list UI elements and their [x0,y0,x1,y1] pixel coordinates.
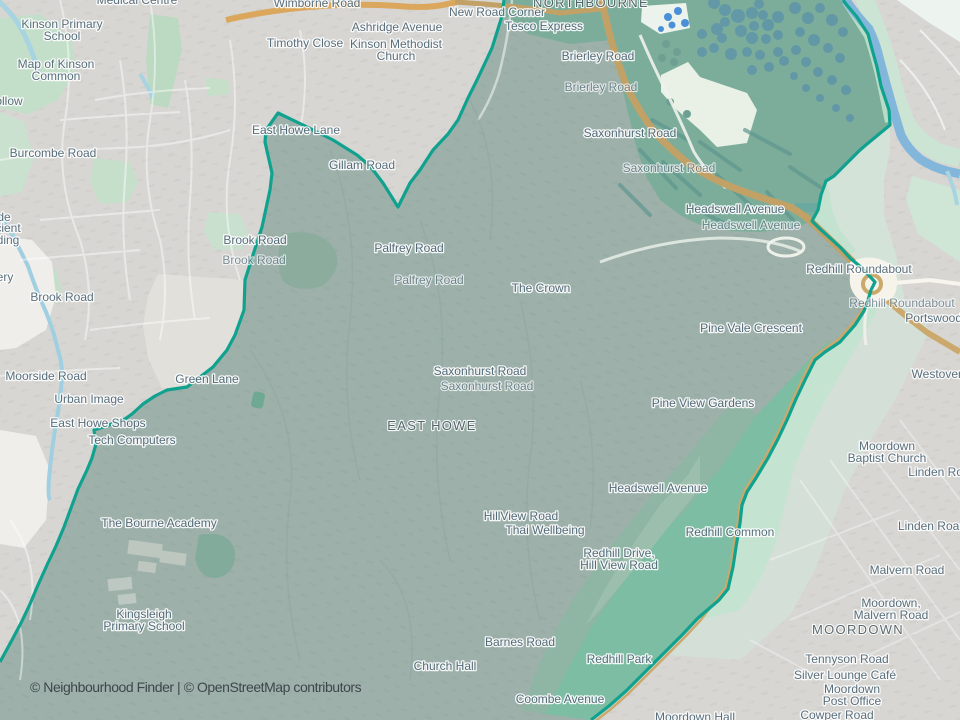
svg-text:Brook Road: Brook Road [30,290,93,304]
svg-text:Baptist Church: Baptist Church [848,451,927,465]
svg-text:Portswood: Portswood [905,311,960,325]
svg-text:Brierley Road: Brierley Road [562,49,635,63]
svg-text:Redhill Park: Redhill Park [587,652,653,666]
svg-text:Saxonhurst Road: Saxonhurst Road [584,126,677,140]
svg-text:Hill View Road: Hill View Road [580,558,658,572]
svg-text:Westover: Westover [912,367,960,381]
svg-text:Malvern Road: Malvern Road [854,608,929,622]
svg-text:Palfrey Road: Palfrey Road [374,241,443,255]
svg-text:Linden Road: Linden Road [898,519,960,533]
svg-text:School: School [44,29,81,43]
svg-text:Saxonhurst Road: Saxonhurst Road [441,379,534,393]
svg-text:ollow: ollow [0,94,23,108]
svg-text:New Road Corner: New Road Corner [449,5,545,19]
svg-text:East Howe Lane: East Howe Lane [252,123,340,137]
svg-text:Post Office: Post Office [823,694,882,708]
svg-text:Barnes Road: Barnes Road [485,635,555,649]
svg-text:Linden Ro: Linden Ro [908,465,960,479]
svg-text:Green Lane: Green Lane [175,372,239,386]
svg-text:Saxonhurst Road: Saxonhurst Road [623,161,716,175]
svg-text:Wimborne Road: Wimborne Road [274,0,361,10]
svg-text:ding: ding [0,233,19,247]
svg-text:Headswell Avenue: Headswell Avenue [702,218,801,232]
svg-text:Silver Lounge Café: Silver Lounge Café [794,668,896,682]
svg-text:© Neighbourhood Finder | © Ope: © Neighbourhood Finder | © OpenStreetMap… [30,679,362,695]
svg-text:Tesco Express: Tesco Express [505,19,583,33]
svg-text:Redhill Roundabout: Redhill Roundabout [849,296,955,310]
svg-text:East Howe Shops: East Howe Shops [50,416,145,430]
svg-text:Medical Centre: Medical Centre [97,0,178,7]
svg-text:The Bourne Academy: The Bourne Academy [101,516,216,530]
svg-text:MOORDOWN: MOORDOWN [812,622,904,637]
svg-text:Church: Church [377,49,416,63]
svg-text:Moorside Road: Moorside Road [5,369,86,383]
svg-text:The Crown: The Crown [512,281,571,295]
svg-text:Common: Common [32,69,81,83]
svg-text:Urban Image: Urban Image [54,392,124,406]
svg-text:Primary School: Primary School [103,619,184,633]
svg-text:EAST HOWE: EAST HOWE [387,418,476,433]
svg-text:Coombe Avenue: Coombe Avenue [516,692,605,706]
svg-text:Tech Computers: Tech Computers [88,433,175,447]
svg-text:Church Hall: Church Hall [414,659,477,673]
svg-text:Malvern Road: Malvern Road [870,563,945,577]
svg-text:Palfrey Road: Palfrey Road [394,273,463,287]
svg-text:Saxonhurst Road: Saxonhurst Road [434,364,527,378]
svg-text:Gillam Road: Gillam Road [329,158,395,172]
svg-text:Brook Road: Brook Road [223,233,286,247]
svg-text:NORTHBOURNE: NORTHBOURNE [533,0,649,10]
svg-text:Cowper Road: Cowper Road [800,708,873,720]
svg-text:Brierley Road: Brierley Road [565,80,638,94]
svg-text:Brook Road: Brook Road [222,253,285,267]
svg-text:ery: ery [0,270,13,284]
svg-text:Burcombe Road: Burcombe Road [10,146,97,160]
svg-text:Ashridge Avenue: Ashridge Avenue [352,20,443,34]
svg-text:Timothy Close: Timothy Close [267,36,344,50]
svg-text:Pine View Gardens: Pine View Gardens [652,396,755,410]
svg-text:Thai Wellbeing: Thai Wellbeing [505,523,584,537]
svg-text:Moordown Hall: Moordown Hall [655,710,735,720]
svg-text:Redhill Roundabout: Redhill Roundabout [806,262,912,276]
svg-text:Headswell Avenue: Headswell Avenue [686,202,785,216]
svg-text:Tennyson Road: Tennyson Road [805,652,888,666]
svg-text:Pine Vale Crescent: Pine Vale Crescent [700,321,802,335]
svg-text:Redhill Common: Redhill Common [686,525,775,539]
svg-text:Headswell Avenue: Headswell Avenue [609,481,708,495]
svg-text:HillView Road: HillView Road [484,509,558,523]
